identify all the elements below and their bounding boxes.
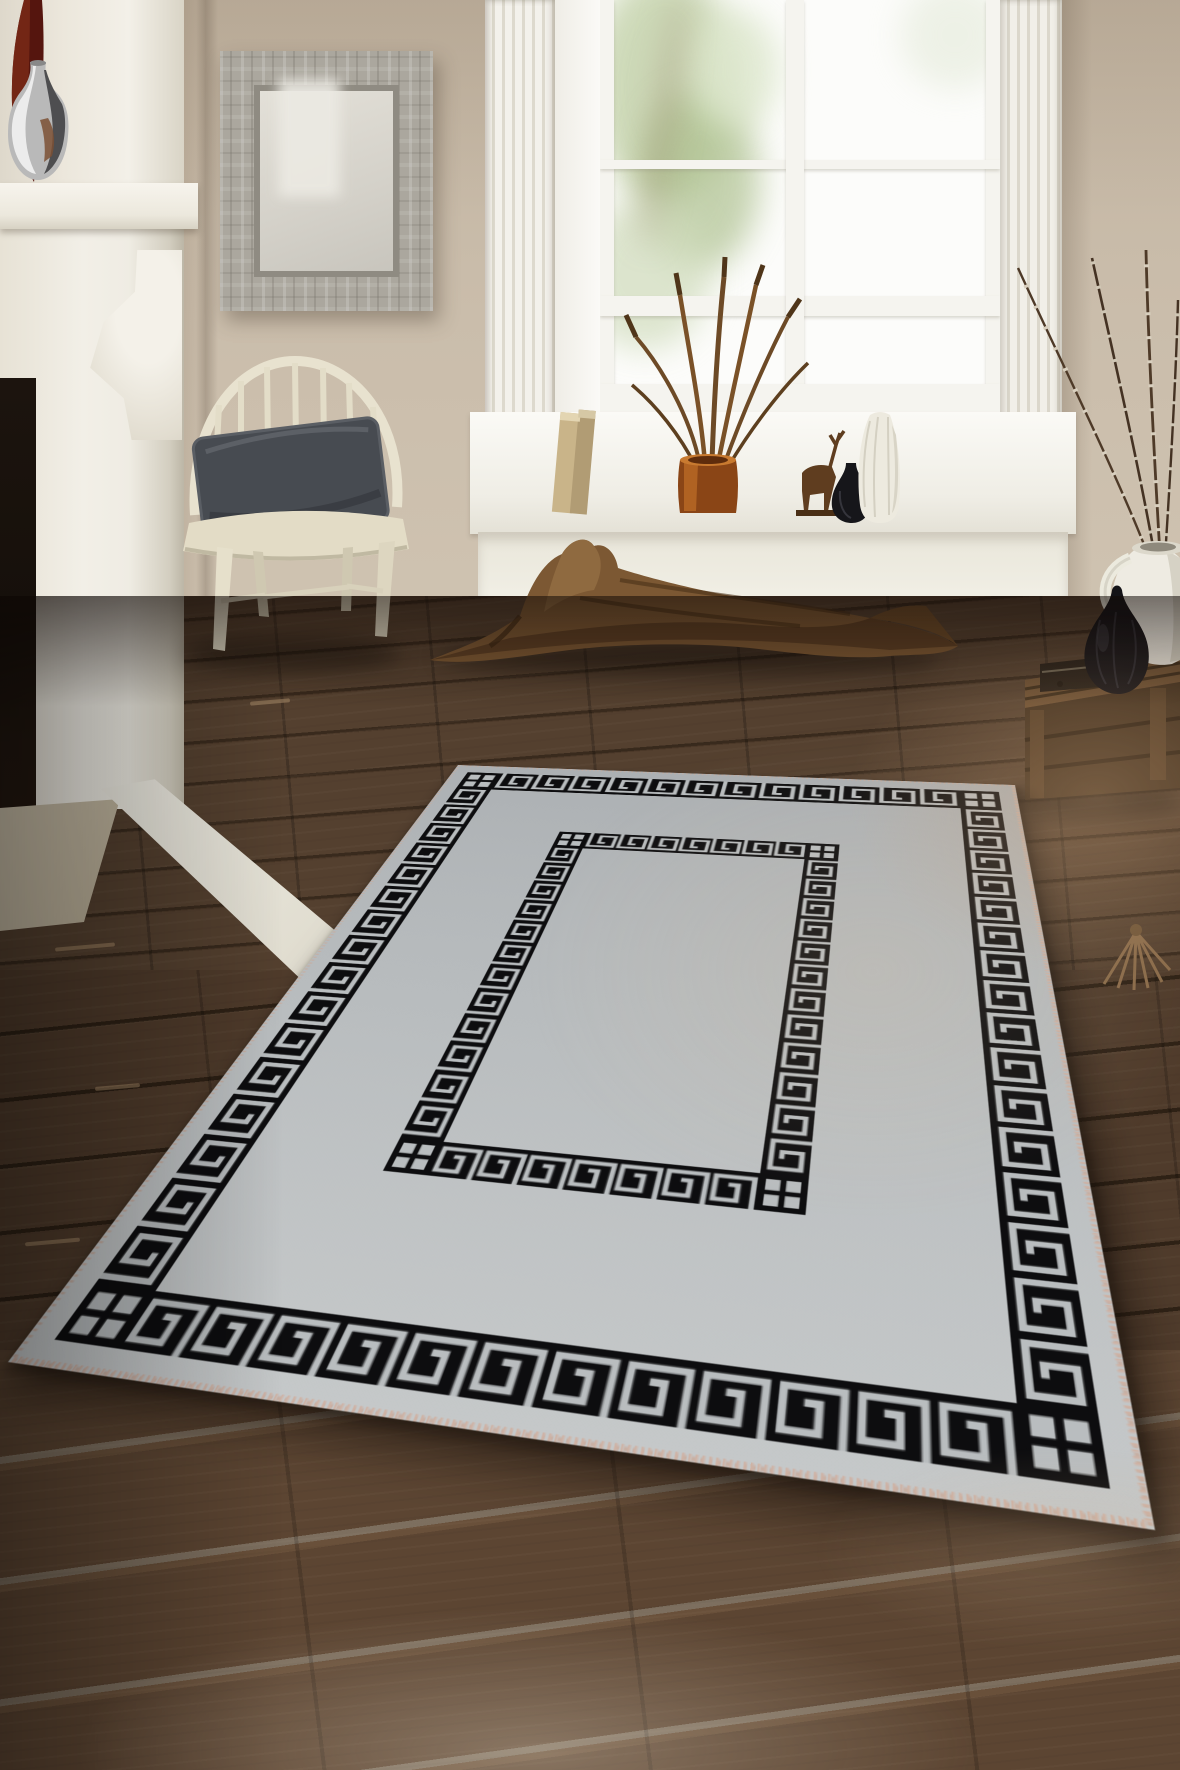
room-scene: Product photo of a light gray rectangula…	[0, 0, 1180, 1770]
amber-vase	[678, 454, 738, 513]
dried-plant	[626, 257, 808, 467]
white-ribbed-vase	[858, 412, 900, 523]
windsor-chair	[175, 355, 415, 665]
driftwood	[420, 520, 970, 680]
books	[552, 408, 596, 515]
floor-tassel	[1090, 920, 1180, 1000]
windowsill-objects	[540, 255, 920, 530]
foliage-blob	[690, 10, 780, 130]
fireplace-firebox	[0, 378, 36, 808]
pallet-group	[1000, 240, 1180, 810]
foliage-blob	[900, 0, 1000, 90]
sash-stile	[986, 0, 1000, 412]
wall-mirror	[220, 51, 433, 311]
pussy-willow-branches	[1018, 250, 1178, 560]
mirror-reflection	[278, 79, 340, 197]
mantel-decor	[0, 0, 90, 200]
